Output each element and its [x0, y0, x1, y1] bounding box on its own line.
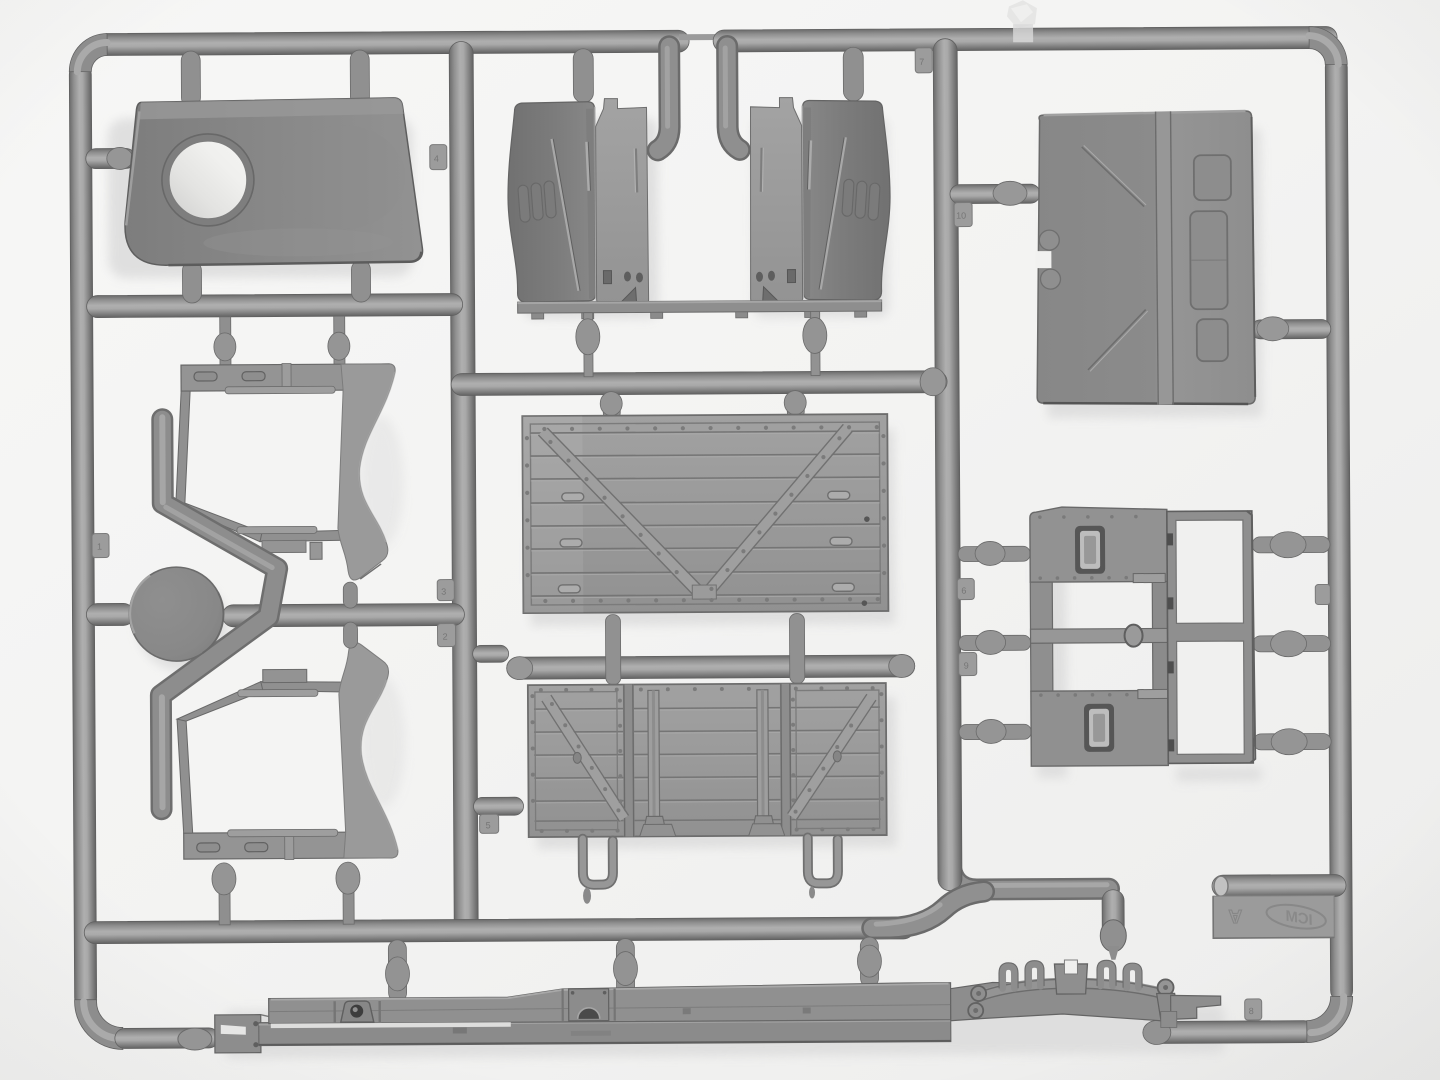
svg-text:10: 10	[956, 211, 966, 221]
svg-text:9: 9	[964, 661, 969, 671]
svg-text:8: 8	[1249, 1006, 1254, 1016]
svg-text:4: 4	[434, 154, 439, 164]
svg-text:6: 6	[961, 586, 966, 596]
svg-text:5: 5	[486, 820, 491, 830]
svg-text:7: 7	[919, 57, 924, 67]
svg-text:2: 2	[443, 632, 448, 642]
svg-text:A: A	[1228, 905, 1242, 926]
svg-text:3: 3	[441, 587, 446, 597]
svg-text:1: 1	[97, 542, 102, 552]
